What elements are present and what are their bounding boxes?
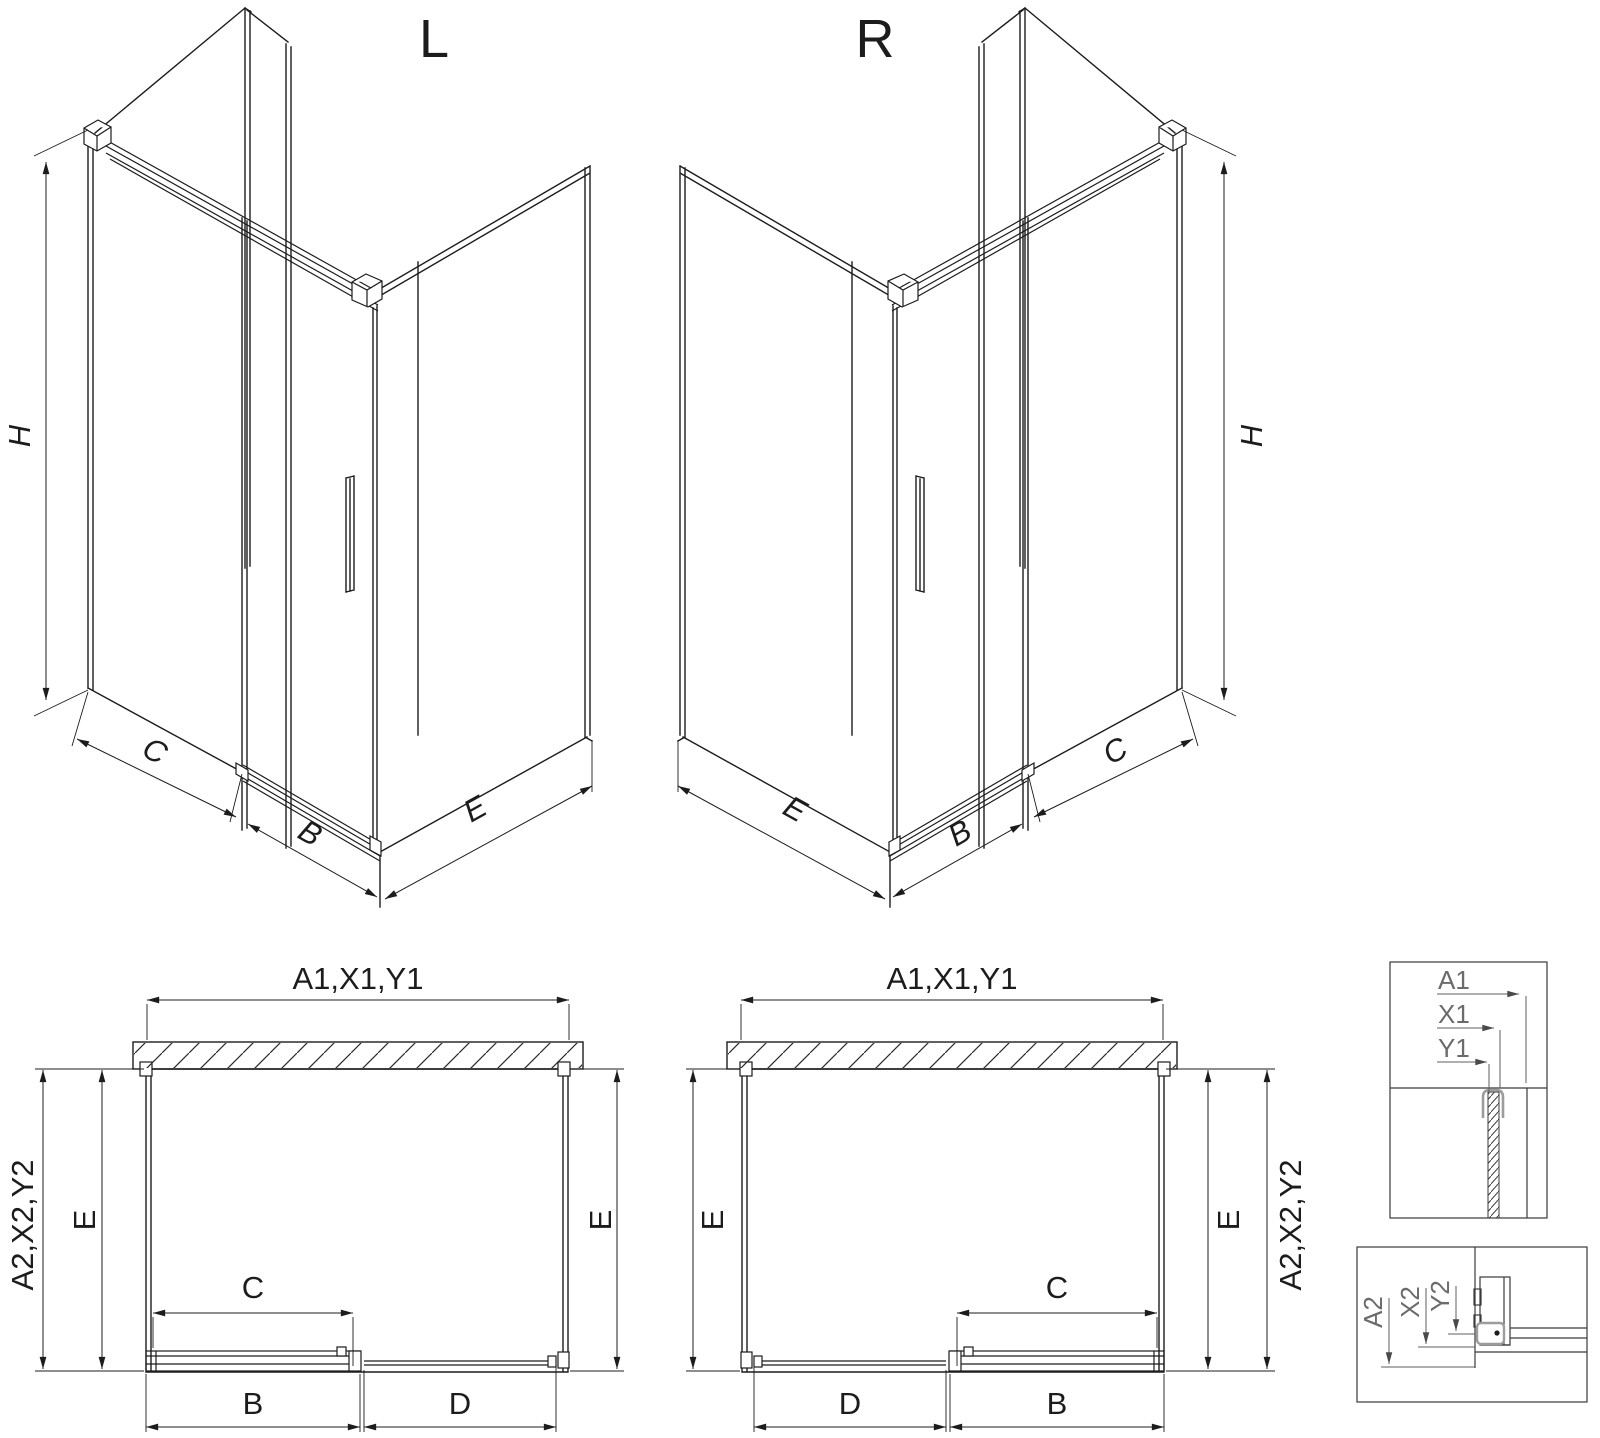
dim-label-c-right: C <box>1097 730 1134 772</box>
plan-left-d-label: D <box>449 1386 471 1421</box>
detail-a2-label: A2 <box>1358 1296 1388 1328</box>
clamp-profile-bottom <box>1477 1323 1504 1344</box>
detail-x1-label: X1 <box>1438 999 1470 1029</box>
plan-right-e-inner-label: E <box>1211 1210 1246 1231</box>
plan-right-e-outer-label: E <box>695 1210 730 1231</box>
plan-right-depth-label: A2,X2,Y2 <box>1273 1160 1308 1291</box>
glass-panel-section <box>1488 1092 1499 1218</box>
variant-title-left: L <box>419 9 449 69</box>
plan-right-b-label: B <box>1047 1386 1068 1421</box>
plan-right-c-label: C <box>1046 1270 1068 1305</box>
iso-drawing-left <box>34 8 592 907</box>
dim-label-b-left-text: B <box>293 813 328 854</box>
wall-hatch-left <box>134 1043 582 1068</box>
fixing-screw-dot <box>1494 1330 1499 1335</box>
plan-left-width-label: A1,X1,Y1 <box>293 961 424 996</box>
detail-a1-label: A1 <box>1438 965 1470 995</box>
dim-label-c-left: C <box>137 730 174 772</box>
detail-x2-label: X2 <box>1395 1286 1425 1318</box>
plan-right-d-label: D <box>839 1386 861 1421</box>
wall-hatch-right <box>728 1043 1176 1068</box>
detail-y2-label: Y2 <box>1425 1280 1455 1312</box>
variant-title-right: R <box>856 9 895 69</box>
plan-left-e-inner-label: E <box>67 1210 102 1231</box>
shower-enclosure-drawing-sheet: L R H C B E H C B E A1,X1,Y1 A2,X2,Y2 E … <box>0 0 1600 1438</box>
detail-y1-label: Y1 <box>1438 1033 1470 1063</box>
dim-label-h-right: H <box>1234 424 1269 447</box>
dim-label-h-left: H <box>2 424 37 447</box>
detail-box-bottom <box>1357 1247 1587 1402</box>
plan-left-c-label: C <box>242 1270 264 1305</box>
dim-label-e-right: E <box>778 788 813 829</box>
plan-right-width-label: A1,X1,Y1 <box>887 961 1018 996</box>
plan-left-b-label: B <box>243 1386 264 1421</box>
dim-label-b-right: B <box>942 813 977 854</box>
dim-label-e-left: E <box>457 788 492 829</box>
iso-drawing-right <box>678 8 1236 907</box>
drawing-canvas: L R H C B E H C B E A1,X1,Y1 A2,X2,Y2 E … <box>0 0 1600 1438</box>
plan-left-e-outer-label: E <box>583 1210 618 1231</box>
plan-left-depth-label: A2,X2,Y2 <box>5 1160 40 1291</box>
